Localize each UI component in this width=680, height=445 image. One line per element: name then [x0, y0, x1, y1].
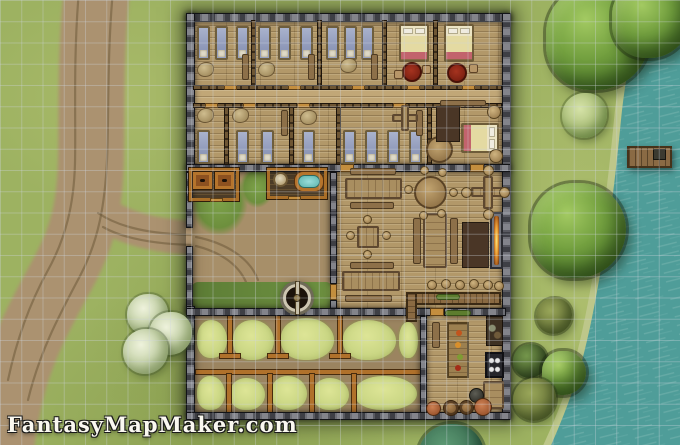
dock-crate	[653, 149, 666, 160]
vegetation-layer	[0, 0, 680, 445]
bush	[513, 378, 556, 421]
bush	[562, 93, 607, 138]
tree-waterside	[418, 424, 484, 445]
tree-large	[531, 183, 626, 278]
bush	[536, 298, 572, 334]
watermark: FantasyMapMaker.com	[7, 412, 298, 437]
bush	[123, 329, 168, 374]
fantasy-inn-map: FantasyMapMaker.com	[0, 0, 680, 445]
tree-large	[612, 0, 680, 58]
